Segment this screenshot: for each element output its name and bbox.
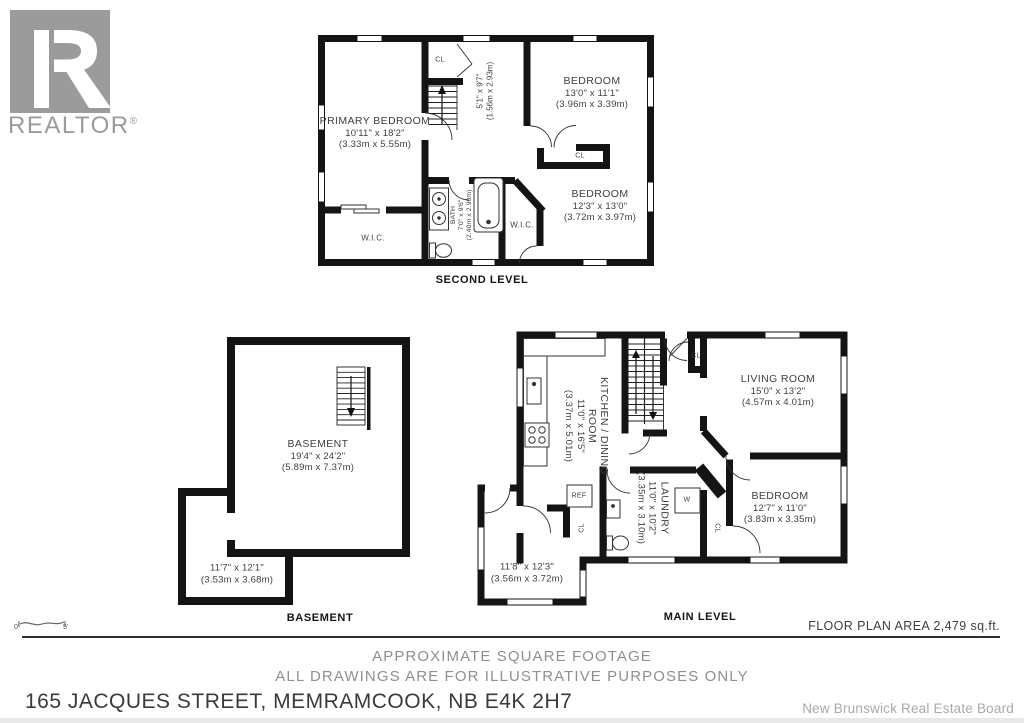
main-level-plan: KITCHEN / DINING ROOM 11'0" x 16'5" (3.3… bbox=[470, 326, 860, 626]
second-level-stairs bbox=[429, 85, 458, 130]
sliding-closet-door bbox=[341, 205, 366, 209]
label-refrigerator: REF bbox=[572, 493, 587, 500]
illustrative-purposes-note: ALL DRAWINGS ARE FOR ILLUSTRATIVE PURPOS… bbox=[0, 668, 1024, 685]
stove-icon bbox=[525, 423, 549, 447]
floor-plan-area-text: FLOOR PLAN AREA 2,479 sq.ft. bbox=[808, 619, 1000, 633]
room-label-living-room: LIVING ROOM 15'0" x 13'2" (4.57m x 4.01m… bbox=[741, 374, 815, 409]
kitchen-counter bbox=[524, 356, 548, 466]
realtor-brand-text: REALTOR bbox=[8, 112, 130, 139]
property-address: 165 JACQUES STREET, MEMRAMCOOK, NB E4K 2… bbox=[25, 690, 572, 714]
realtor-wordmark: REALTOR® bbox=[8, 112, 148, 140]
label-closet-small: CL bbox=[579, 523, 586, 533]
bottom-edge-strip bbox=[0, 718, 1024, 723]
toilet-icon bbox=[436, 244, 452, 258]
realtor-logo bbox=[10, 10, 110, 113]
label-closet-entry: CL bbox=[691, 353, 701, 360]
scale-zero-label: 0' bbox=[14, 624, 19, 631]
room-label-kitchen-dining: KITCHEN / DINING ROOM 11'0" x 16'5" (3.3… bbox=[562, 377, 610, 475]
second-level-plan: PRIMARY BEDROOM 10'11" x 18'2" (3.33m x … bbox=[316, 34, 656, 294]
basement-title: BASEMENT bbox=[287, 612, 354, 624]
room-label-main-room: 11'8" x 12'3" (3.56m x 3.72m) bbox=[491, 562, 563, 585]
board-credit: New Brunswick Real Estate Board bbox=[802, 701, 1014, 716]
living-room-diagonal-wall bbox=[704, 431, 727, 456]
sink-icon bbox=[607, 500, 621, 518]
toilet-tank bbox=[607, 536, 613, 550]
toilet-tank bbox=[430, 243, 436, 258]
sliding-closet-door bbox=[354, 209, 379, 213]
room-label-bedroom-2: BEDROOM 12'3" x 13'0" (3.72m x 3.97m) bbox=[564, 189, 636, 224]
stairs-up-arrow bbox=[632, 350, 640, 358]
scale-five-label: 5' bbox=[63, 624, 68, 631]
label-wic-primary: W.I.C. bbox=[361, 234, 385, 243]
room-label-basement: BASEMENT 19'4" x 24'2" (5.89m x 7.37m) bbox=[282, 439, 354, 474]
label-washer: W bbox=[684, 497, 691, 504]
room-label-bedroom-1: BEDROOM 13'0" x 11'1" (3.96m x 3.39m) bbox=[556, 76, 628, 111]
room-label-main-bedroom: BEDROOM 12'7" x 11'0" (3.83m x 3.35m) bbox=[744, 491, 816, 526]
stairs-down-arrow bbox=[649, 412, 657, 420]
room-label-basement-room: 11'7" x 12'1" (3.53m x 3.68m) bbox=[201, 563, 273, 586]
main-level-fixtures bbox=[524, 339, 701, 551]
second-level-title: SECOND LEVEL bbox=[436, 274, 529, 286]
main-level-title: MAIN LEVEL bbox=[664, 611, 737, 623]
label-wic-center: W.I.C. bbox=[510, 221, 534, 230]
realtor-logo-icon bbox=[10, 10, 110, 113]
footer-divider bbox=[22, 636, 1000, 638]
room-label-laundry: LAUNDRY 11'0" x 10'2" (3.35m x 3.10m) bbox=[635, 472, 670, 544]
approximate-footage-note: APPROXIMATE SQUARE FOOTAGE bbox=[0, 648, 1024, 665]
kitchen-sink-icon bbox=[527, 378, 541, 404]
label-closet-bedrooms: CL bbox=[575, 153, 585, 160]
room-label-bath: BATH 7'0" x 9'6" (2.40m x 2.90m) bbox=[450, 190, 474, 241]
basement-plan: BASEMENT 19'4" x 24'2" (5.89m x 7.37m) 1… bbox=[170, 330, 430, 625]
kitchen-counter bbox=[524, 339, 606, 357]
basement-stairs bbox=[337, 367, 371, 430]
label-closet-top: CL bbox=[435, 57, 445, 64]
room-label-primary-bedroom: PRIMARY BEDROOM 10'11" x 18'2" (3.33m x … bbox=[320, 116, 431, 151]
registered-trademark: ® bbox=[130, 116, 139, 127]
room-label-hall: 5'1" x 9'7" (1.56m x 2.93m) bbox=[476, 62, 495, 120]
label-closet-bedroom: CL bbox=[714, 523, 721, 533]
main-level-stairs bbox=[629, 339, 664, 430]
wic-diagonal-wall bbox=[515, 181, 543, 212]
toilet-icon bbox=[613, 536, 629, 550]
